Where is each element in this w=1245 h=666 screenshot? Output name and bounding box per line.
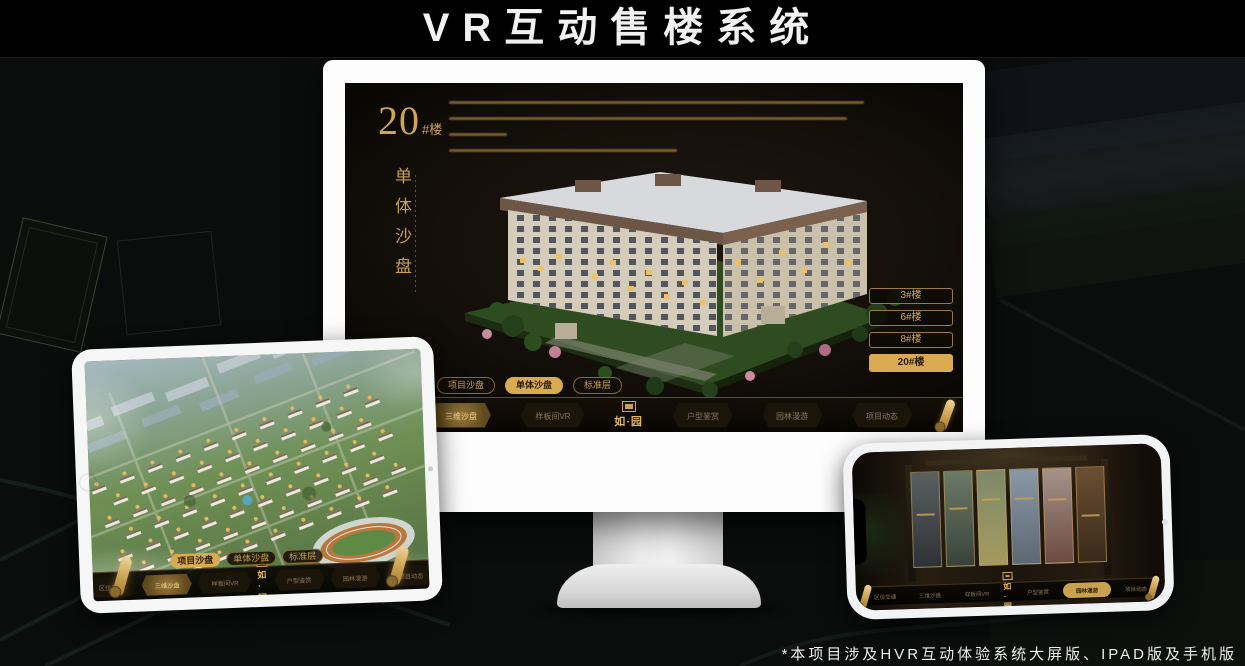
scroll-menu-icon[interactable]: [937, 398, 956, 431]
tablet-device: 项目沙盘 单体沙盘 标准层 区位交通 三维沙盘 样板间VR 如·园 户型鉴赏 园…: [71, 336, 443, 614]
tablet-nav-item-floorplan[interactable]: 户型鉴赏: [274, 568, 325, 591]
phone-nav-item-garden-roam[interactable]: 园林漫游: [1063, 581, 1111, 598]
tablet-mode-tab-single-sandbox[interactable]: 单体沙盘: [226, 550, 277, 566]
tablet-brand-logo-text: 如·园: [257, 568, 269, 602]
monitor-stand-base: [557, 564, 761, 608]
block-subtitle-vertical: 单体沙盘: [389, 167, 414, 287]
phone-nav-item-showroom-vr[interactable]: 样板间VR: [954, 585, 998, 601]
phone-brand-logo-text: 如·园: [1003, 581, 1014, 611]
mode-tab-project-sandbox[interactable]: 项目沙盘: [437, 377, 495, 394]
gallery-cards: [910, 466, 1107, 568]
floor-button-6[interactable]: 6#楼: [869, 310, 953, 326]
nav-item-garden-roam[interactable]: 园林漫游: [762, 403, 822, 428]
phone-device: 区位交通 三维沙盘 样板间VR 如·园 户型鉴赏 园林漫游 项目动态: [842, 434, 1174, 620]
gallery-card-2[interactable]: [943, 470, 975, 567]
building-3d-render[interactable]: [405, 138, 905, 398]
gallery-card-1[interactable]: [910, 471, 942, 568]
page-title: VR互动售楼系统: [0, 0, 1245, 57]
phone-camera: [1162, 519, 1168, 525]
nav-item-project-news[interactable]: 项目动态: [852, 403, 912, 428]
floor-button-group: 3#楼 6#楼 8#楼 20#楼: [869, 288, 953, 372]
floor-button-20[interactable]: 20#楼: [869, 354, 953, 372]
block-suffix: #楼: [422, 122, 442, 137]
gallery-card-3[interactable]: [976, 469, 1008, 566]
phone-screen: 区位交通 三维沙盘 样板间VR 如·园 户型鉴赏 园林漫游 项目动态: [852, 443, 1166, 611]
gallery-card-6[interactable]: [1075, 466, 1107, 563]
phone-nav-item-3d-sandbox[interactable]: 三维沙盘: [909, 586, 949, 602]
phone-seal-icon: [1003, 572, 1013, 580]
bottom-nav: 区位交通 三维沙盘 样板间VR 如·园 户型鉴赏 园林漫游 项目动态: [345, 397, 963, 432]
seal-icon: [622, 401, 636, 412]
bg-left-plaques: [0, 218, 221, 352]
description-line: [449, 101, 864, 104]
brand-logo-text: 如·园: [614, 413, 643, 429]
footnote: *本项目涉及HVR互动体验系统大屏版、IPAD版及手机版: [782, 643, 1237, 664]
block-number: 20: [378, 98, 420, 143]
tablet-nav-item-showroom-vr[interactable]: 样板间VR: [197, 571, 252, 594]
description-line: [449, 149, 677, 152]
monitor-stand: [593, 512, 723, 570]
tablet-mode-tab-standard-floor[interactable]: 标准层: [282, 549, 324, 565]
mode-tab-single-sandbox[interactable]: 单体沙盘: [505, 377, 563, 394]
nav-item-floorplan[interactable]: 户型鉴赏: [673, 403, 733, 428]
floor-button-3[interactable]: 3#楼: [869, 288, 953, 304]
stage: VR互动售楼系统 20#楼 单体沙盘: [0, 0, 1245, 666]
nav-item-showroom-vr[interactable]: 样板间VR: [521, 403, 585, 428]
brand-logo[interactable]: 如·园: [614, 401, 643, 429]
description-line: [449, 117, 847, 120]
tablet-nav-item-garden-roam[interactable]: 园林漫游: [330, 566, 381, 589]
gallery-card-5[interactable]: [1042, 467, 1074, 564]
tablet-mode-tab-project-sandbox[interactable]: 项目沙盘: [170, 552, 221, 568]
phone-notch: [853, 498, 867, 564]
floor-button-8[interactable]: 8#楼: [869, 332, 953, 348]
mode-tab-group: 项目沙盘 单体沙盘 标准层: [437, 377, 622, 394]
title-band: VR互动售楼系统: [0, 0, 1245, 58]
tablet-nav-item-3d-sandbox[interactable]: 三维沙盘: [141, 573, 192, 596]
phone-brand-logo[interactable]: 如·园: [1003, 572, 1014, 611]
tablet-screen: 项目沙盘 单体沙盘 标准层 区位交通 三维沙盘 样板间VR 如·园 户型鉴赏 园…: [85, 349, 430, 602]
monitor-screen: 20#楼 单体沙盘: [345, 83, 963, 432]
mode-tab-standard-floor[interactable]: 标准层: [573, 377, 622, 394]
description-paragraph: [449, 101, 864, 165]
block-title: 20#楼: [378, 97, 442, 144]
description-line: [449, 133, 507, 136]
tablet-camera: [428, 466, 433, 471]
phone-nav-item-floorplan[interactable]: 户型鉴赏: [1018, 583, 1058, 599]
gallery-card-4[interactable]: [1009, 468, 1041, 565]
nav-item-3d-sandbox[interactable]: 三维沙盘: [431, 403, 491, 428]
